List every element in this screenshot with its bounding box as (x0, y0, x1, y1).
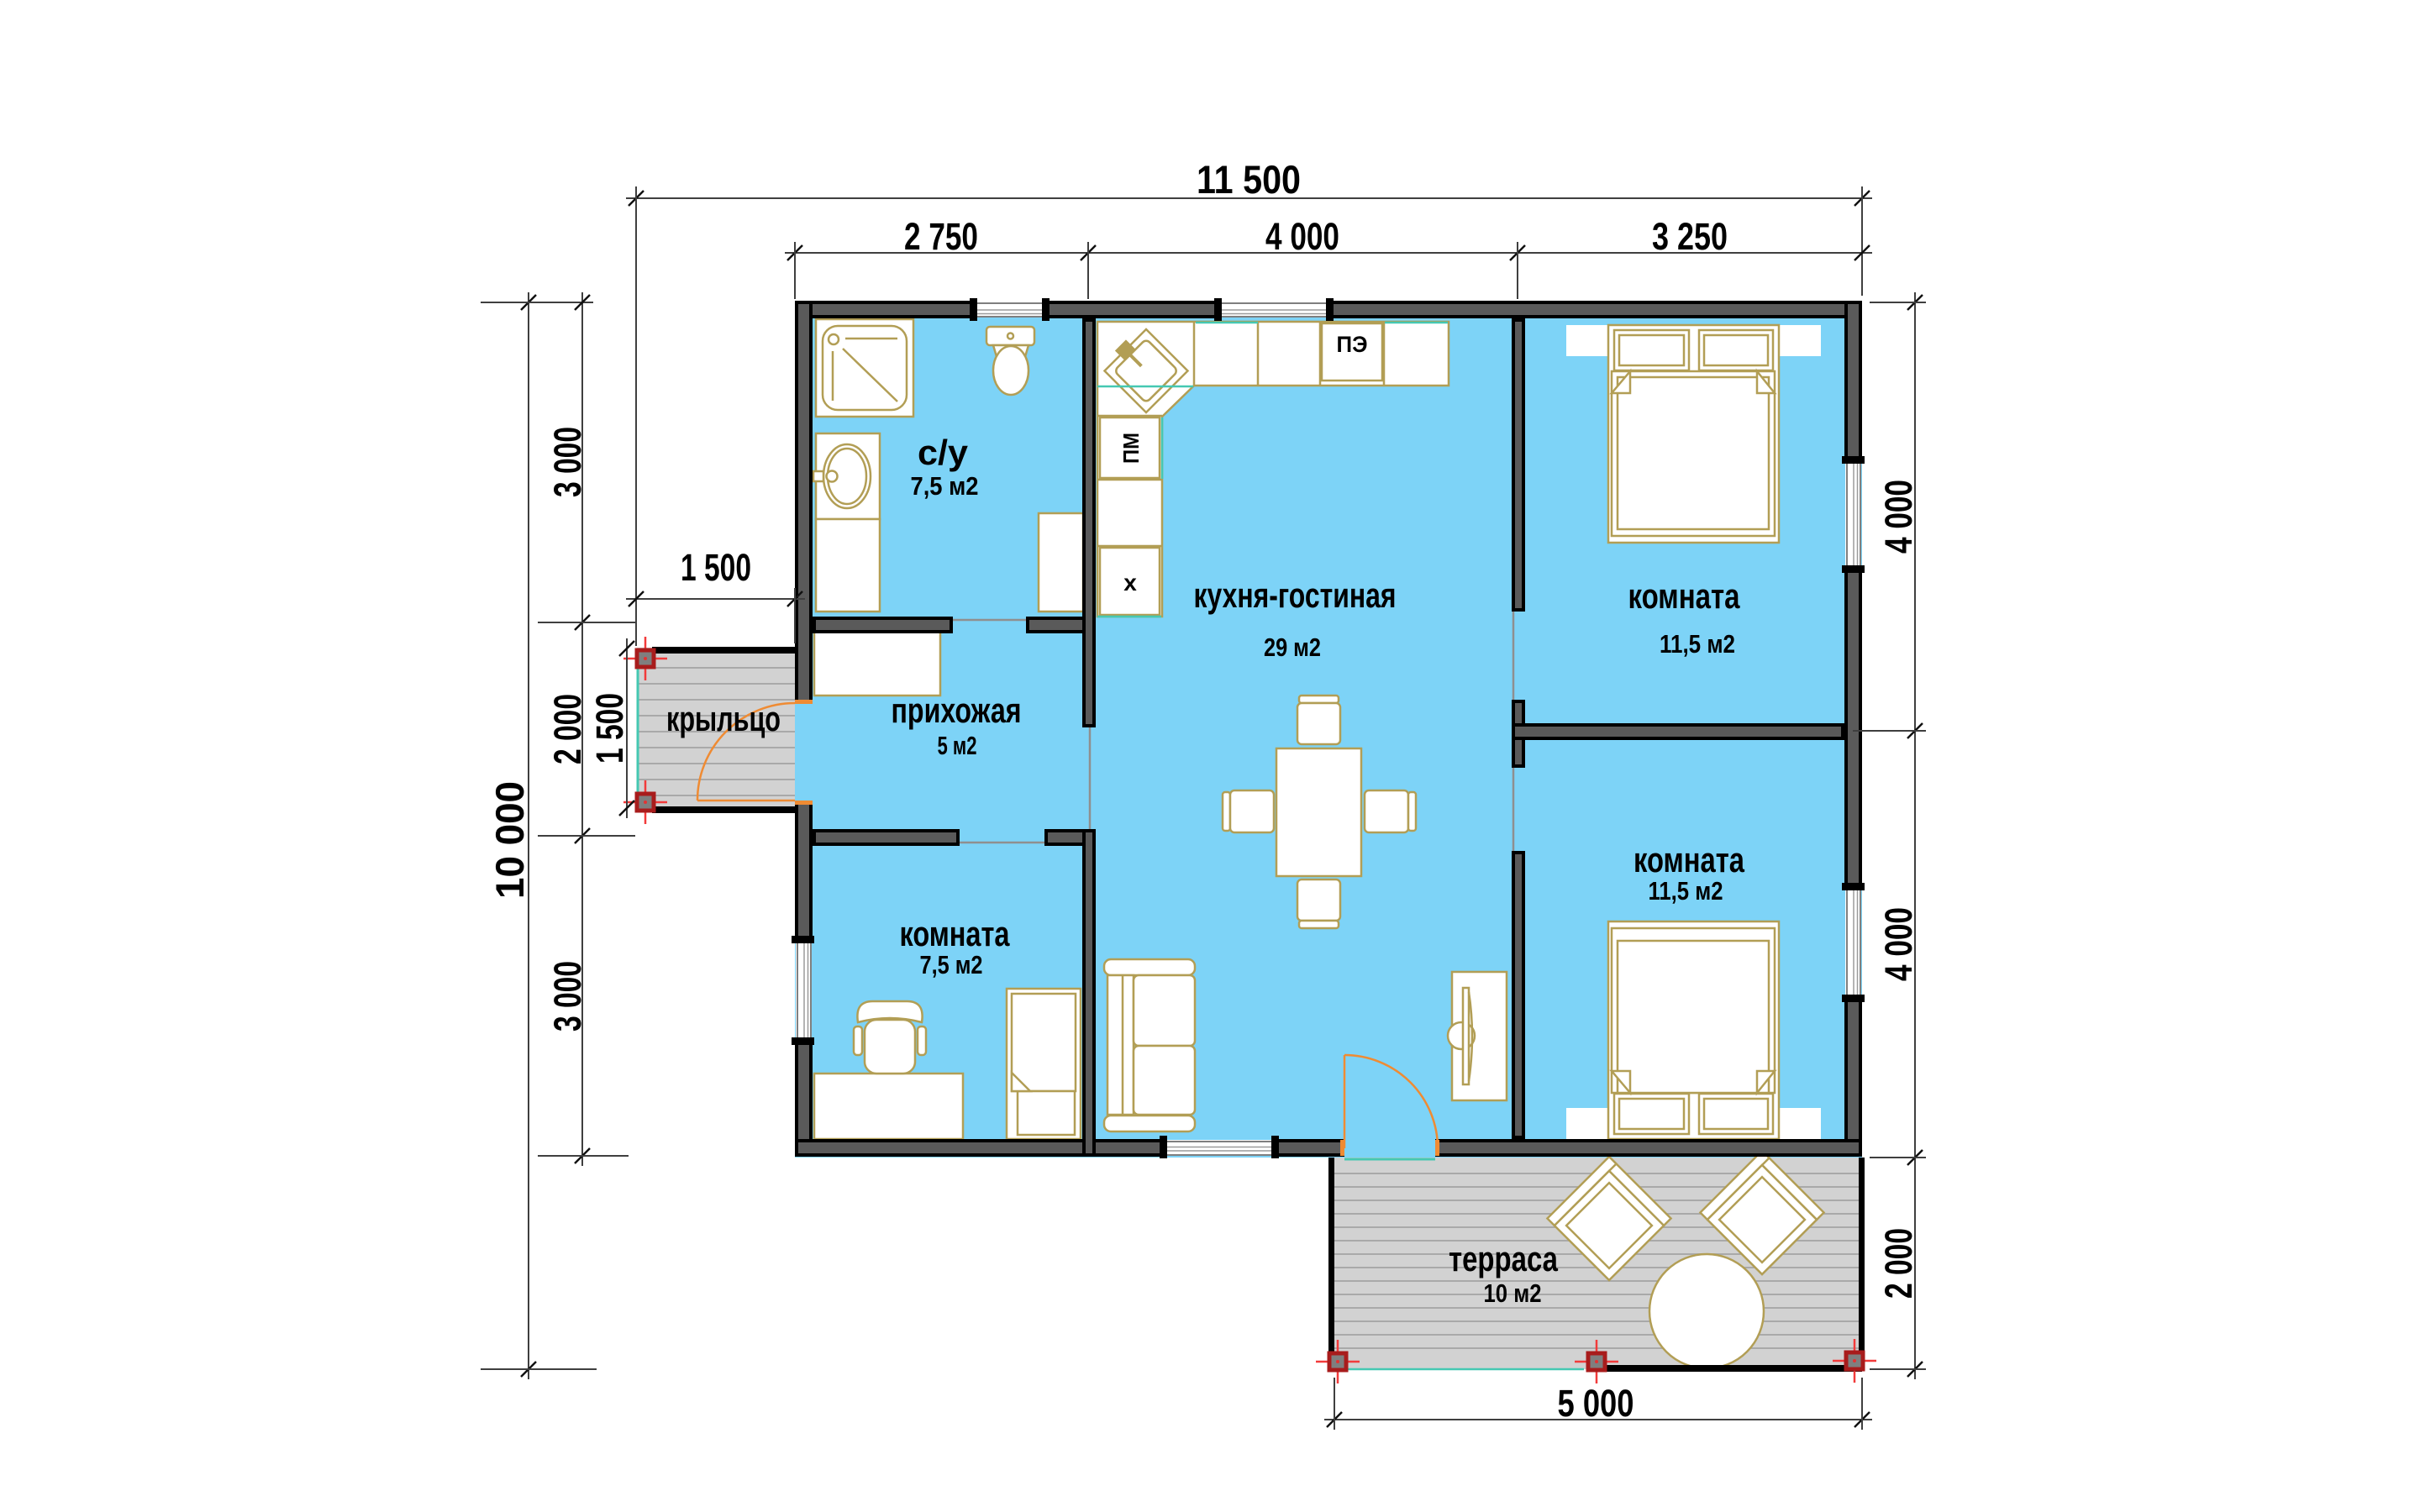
svg-text:5 000: 5 000 (1558, 1382, 1634, 1425)
svg-text:прихожая: прихожая (892, 690, 1022, 730)
svg-text:11,5 м2: 11,5 м2 (1649, 876, 1723, 906)
svg-text:11 500: 11 500 (1197, 157, 1301, 202)
svg-text:10 м2: 10 м2 (1484, 1278, 1542, 1308)
svg-text:крыльцо: крыльцо (666, 699, 781, 738)
svg-text:х: х (1123, 570, 1137, 596)
svg-text:2 750: 2 750 (904, 215, 978, 258)
svg-text:2 000: 2 000 (546, 694, 589, 764)
svg-text:7,5 м2: 7,5 м2 (920, 950, 983, 979)
svg-text:4 000: 4 000 (1877, 480, 1920, 554)
svg-text:29 м2: 29 м2 (1264, 633, 1321, 662)
svg-text:3 250: 3 250 (1652, 215, 1728, 258)
svg-text:7,5 м2: 7,5 м2 (911, 471, 979, 501)
svg-text:2 000: 2 000 (1877, 1228, 1920, 1299)
svg-text:с/у: с/у (918, 433, 969, 472)
svg-text:3 000: 3 000 (546, 961, 589, 1032)
svg-text:ПМ: ПМ (1118, 433, 1144, 464)
svg-text:комната: комната (900, 914, 1010, 953)
svg-text:кухня-гостиная: кухня-гостиная (1194, 575, 1397, 615)
svg-text:комната: комната (1633, 840, 1744, 879)
svg-text:терраса: терраса (1449, 1239, 1559, 1278)
svg-text:4 000: 4 000 (1877, 907, 1920, 981)
svg-text:4 000: 4 000 (1265, 215, 1339, 258)
svg-text:ПЭ: ПЭ (1337, 332, 1368, 357)
svg-text:10 000: 10 000 (487, 781, 532, 899)
svg-text:11,5 м2: 11,5 м2 (1660, 629, 1735, 659)
svg-text:5 м2: 5 м2 (938, 731, 977, 760)
svg-text:1 500: 1 500 (681, 546, 751, 589)
svg-text:1 500: 1 500 (588, 693, 631, 764)
svg-text:3 000: 3 000 (546, 427, 589, 497)
svg-text:комната: комната (1628, 576, 1741, 616)
